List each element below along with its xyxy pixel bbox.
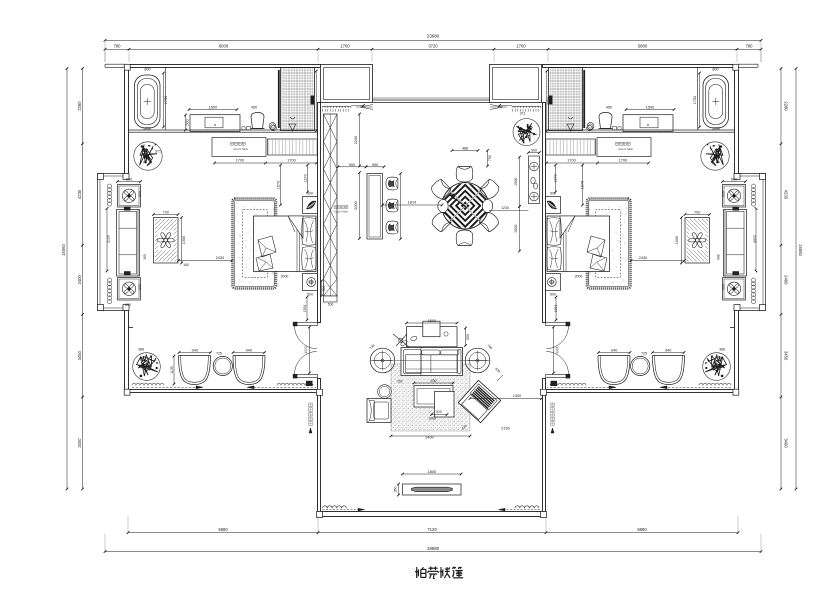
svg-text:300: 300 <box>322 286 326 292</box>
svg-text:600: 600 <box>126 178 132 182</box>
svg-text:780: 780 <box>746 44 754 49</box>
svg-text:360: 360 <box>143 254 147 260</box>
svg-text:850: 850 <box>125 303 131 307</box>
svg-text:1500: 1500 <box>646 106 654 110</box>
svg-text:1500: 1500 <box>428 319 436 323</box>
svg-text:2280: 2280 <box>77 101 82 111</box>
svg-text:1700: 1700 <box>567 159 575 163</box>
svg-text:1500: 1500 <box>514 225 518 233</box>
svg-text:2200: 2200 <box>354 136 358 144</box>
svg-text:600: 600 <box>721 191 725 197</box>
svg-text:780: 780 <box>114 44 122 49</box>
svg-text:940: 940 <box>246 349 252 353</box>
svg-text:2000: 2000 <box>354 201 358 209</box>
svg-text:350: 350 <box>394 487 398 493</box>
svg-text:371: 371 <box>520 112 526 116</box>
svg-text:520: 520 <box>436 410 442 414</box>
svg-text:940: 940 <box>665 349 671 353</box>
svg-text:450: 450 <box>251 106 257 110</box>
svg-text:1000: 1000 <box>675 236 679 244</box>
svg-text:1700: 1700 <box>287 159 295 163</box>
svg-text:1800: 1800 <box>427 469 437 474</box>
svg-text:500: 500 <box>466 334 470 340</box>
svg-text:1750: 1750 <box>693 96 697 104</box>
svg-text:1700: 1700 <box>619 159 627 163</box>
svg-text:500: 500 <box>307 192 313 196</box>
svg-text:600: 600 <box>731 178 737 182</box>
svg-text:3400: 3400 <box>784 438 789 448</box>
svg-text:940: 940 <box>192 349 198 353</box>
svg-text:1954: 1954 <box>554 305 558 313</box>
svg-text:990: 990 <box>372 163 378 167</box>
svg-text:2430: 2430 <box>639 256 647 260</box>
svg-text:500: 500 <box>531 149 537 153</box>
svg-text:500: 500 <box>328 303 334 307</box>
svg-text:900: 900 <box>349 163 355 167</box>
svg-text:1000: 1000 <box>182 236 186 244</box>
svg-text:2430: 2430 <box>216 256 224 260</box>
svg-text:3450: 3450 <box>784 351 789 361</box>
svg-text:1750: 1750 <box>164 96 168 104</box>
svg-text:1300: 1300 <box>513 394 521 398</box>
svg-text:1670: 1670 <box>581 181 585 189</box>
svg-text:6000: 6000 <box>219 44 229 49</box>
svg-text:1500: 1500 <box>209 106 217 110</box>
svg-text:930: 930 <box>430 379 436 383</box>
svg-text:2400: 2400 <box>77 274 82 284</box>
svg-text:2000: 2000 <box>281 275 289 279</box>
svg-text:2280: 2280 <box>784 101 789 111</box>
svg-text:1000: 1000 <box>304 346 308 354</box>
svg-text:725: 725 <box>216 352 222 356</box>
svg-text:3060: 3060 <box>311 97 315 105</box>
svg-text:2100: 2100 <box>753 235 757 243</box>
svg-text:368: 368 <box>138 348 144 352</box>
svg-text:250: 250 <box>397 380 403 384</box>
svg-text:Accent Table: Accent Table <box>233 147 248 151</box>
svg-text:Accent Table: Accent Table <box>618 147 633 151</box>
svg-text:18880: 18880 <box>427 546 440 551</box>
svg-text:500: 500 <box>550 293 556 297</box>
svg-text:1954: 1954 <box>303 305 307 313</box>
svg-text:16060: 16060 <box>61 244 66 256</box>
svg-text:16060: 16060 <box>798 244 803 256</box>
svg-text:450: 450 <box>606 106 612 110</box>
svg-text:368: 368 <box>719 348 725 352</box>
svg-text:3400: 3400 <box>77 438 82 448</box>
svg-text:725: 725 <box>641 352 647 356</box>
svg-text:4230: 4230 <box>784 190 789 200</box>
svg-text:940: 940 <box>611 349 617 353</box>
svg-text:360: 360 <box>716 254 720 260</box>
svg-text:1050: 1050 <box>143 126 151 130</box>
svg-text:4230: 4230 <box>77 189 82 199</box>
svg-text:700: 700 <box>694 211 700 215</box>
svg-text:1700: 1700 <box>340 44 350 49</box>
svg-text:1700: 1700 <box>236 159 244 163</box>
svg-text:700: 700 <box>163 211 169 215</box>
svg-text:1060: 1060 <box>428 417 436 421</box>
svg-text:5880: 5880 <box>637 527 647 532</box>
svg-text:371: 371 <box>155 150 161 154</box>
svg-text:500: 500 <box>550 192 556 196</box>
svg-text:5880: 5880 <box>218 527 228 532</box>
svg-text:2190: 2190 <box>501 427 509 431</box>
svg-text:1670: 1670 <box>276 181 280 189</box>
svg-text:1000: 1000 <box>555 346 559 354</box>
svg-text:1500: 1500 <box>514 178 518 186</box>
svg-text:1700: 1700 <box>516 44 526 49</box>
svg-text:2400: 2400 <box>784 275 789 285</box>
svg-text:Accent Table: Accent Table <box>334 211 348 214</box>
svg-text:800: 800 <box>144 67 150 71</box>
svg-text:1130: 1130 <box>170 366 174 374</box>
svg-text:486: 486 <box>462 147 468 151</box>
svg-text:800: 800 <box>712 67 718 71</box>
svg-text:600: 600 <box>138 284 142 290</box>
svg-text:600: 600 <box>138 191 142 197</box>
svg-text:750: 750 <box>488 155 492 161</box>
svg-text:23680: 23680 <box>427 34 440 39</box>
svg-text:2000: 2000 <box>575 275 583 279</box>
svg-text:600: 600 <box>721 284 725 290</box>
svg-text:1050: 1050 <box>712 126 720 130</box>
svg-text:2100: 2100 <box>106 235 110 243</box>
svg-text:1370: 1370 <box>303 174 307 182</box>
svg-text:1234: 1234 <box>501 206 509 210</box>
svg-text:3060: 3060 <box>546 97 550 105</box>
svg-text:7120: 7120 <box>427 527 437 532</box>
svg-text:5880: 5880 <box>638 44 648 49</box>
svg-text:1814: 1814 <box>408 201 416 205</box>
svg-text:3720: 3720 <box>428 44 438 49</box>
svg-text:3450: 3450 <box>77 350 82 360</box>
svg-text:500: 500 <box>186 119 190 125</box>
svg-text:160: 160 <box>183 263 189 267</box>
svg-text:1370: 1370 <box>554 174 558 182</box>
